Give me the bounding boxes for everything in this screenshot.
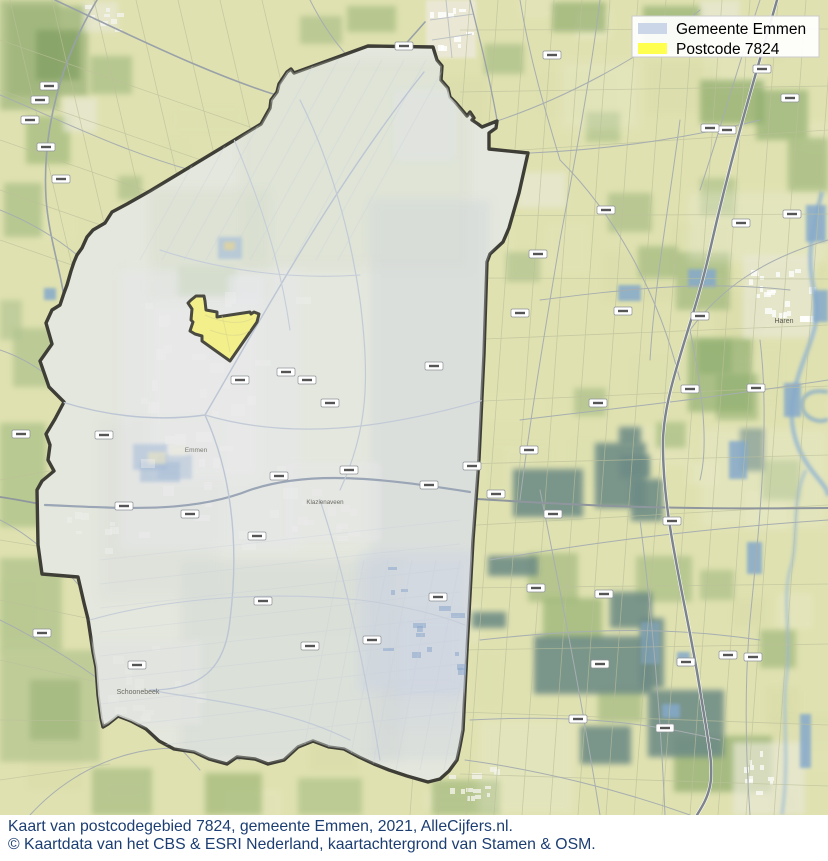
- svg-text:Klazienaveen: Klazienaveen: [306, 499, 344, 506]
- svg-text:Schoonebeek: Schoonebeek: [117, 689, 160, 696]
- svg-text:Postcode 7824: Postcode 7824: [676, 41, 780, 58]
- svg-text:Haren: Haren: [774, 318, 793, 325]
- svg-text:Gemeente Emmen: Gemeente Emmen: [676, 21, 806, 38]
- svg-text:Emmen: Emmen: [185, 447, 208, 454]
